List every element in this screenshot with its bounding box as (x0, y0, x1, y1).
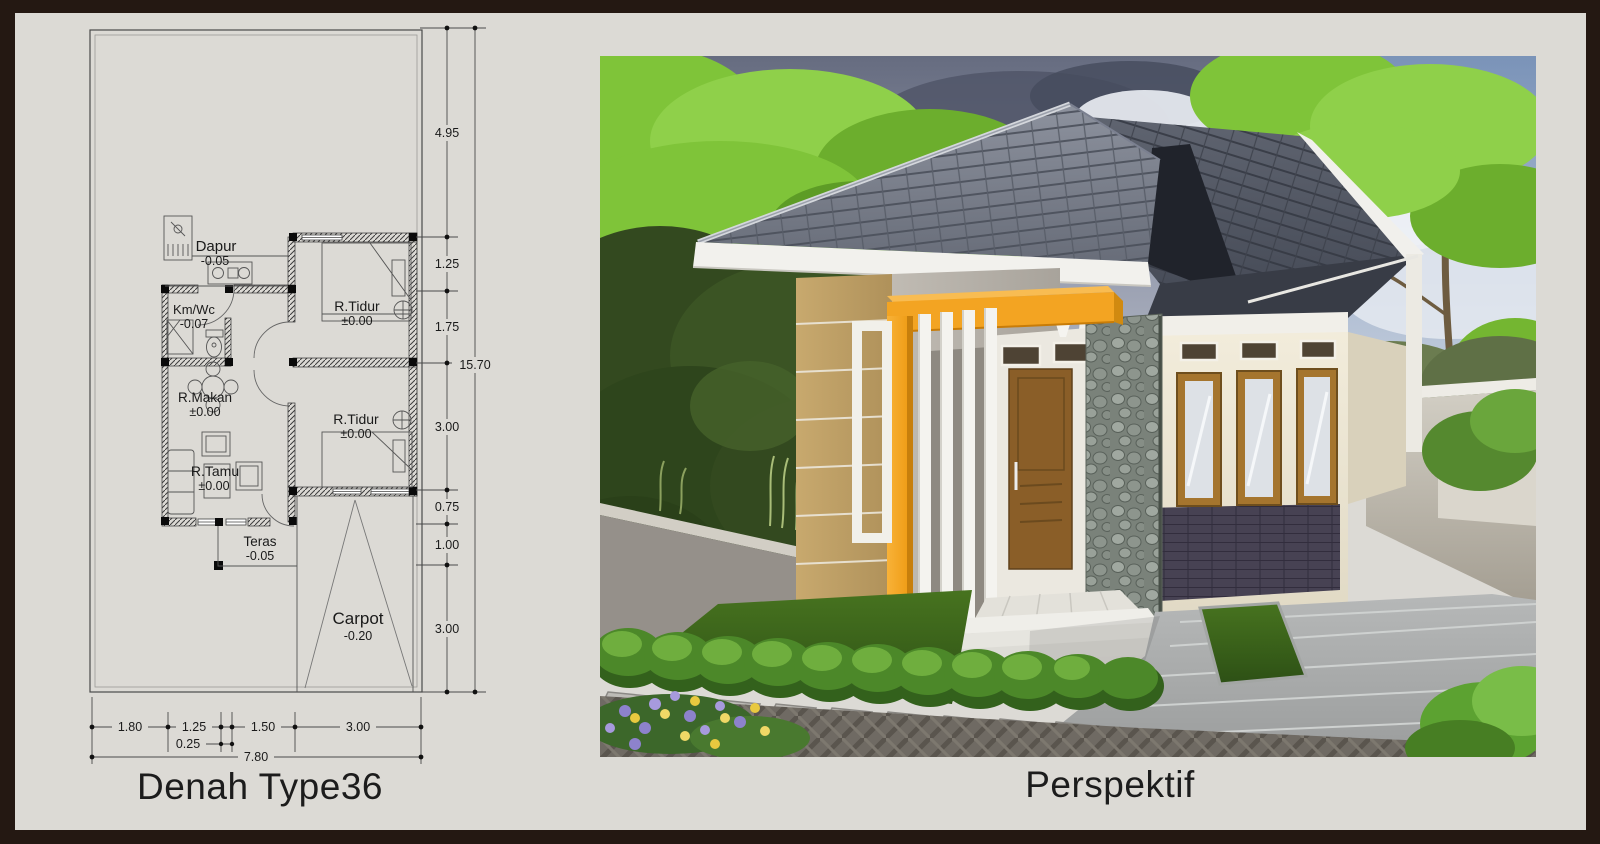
dim-v-6: 3.00 (435, 622, 459, 636)
teras-carport (218, 496, 413, 692)
room-level-tidur1: ±0.00 (341, 314, 372, 328)
door-transom (1002, 346, 1040, 365)
room-label-makan: R.Makan (178, 390, 232, 405)
room-label-tidur2: R.Tidur (333, 411, 379, 427)
entry (988, 314, 1162, 640)
plan-caption: Denah Type36 (90, 766, 430, 808)
transom-window (1301, 341, 1335, 358)
room-level-tidur2: ±0.00 (340, 427, 371, 441)
frame-edge-left (0, 0, 15, 844)
room-label-kmwc: Km/Wc (173, 302, 215, 317)
dim-h-0: 1.80 (118, 720, 142, 734)
room-label-carpot: Carpot (332, 609, 383, 628)
side-recess-wall (1348, 332, 1406, 504)
room-level-teras: -0.05 (246, 549, 275, 563)
room-level-dapur: -0.05 (201, 254, 230, 268)
room-level-carpot: -0.20 (344, 629, 373, 643)
room-level-kmwc: -0.07 (180, 317, 209, 331)
dim-h-2: 1.50 (251, 720, 275, 734)
brick-dado (1143, 504, 1340, 602)
dim-v-2: 1.75 (435, 320, 459, 334)
room-label-tamu: R.Tamu (191, 463, 239, 479)
floor-plan: Dapur -0.05 Km/Wc -0.07 R.Tidur ±0.00 R.… (0, 0, 560, 844)
dim-h-total: 7.80 (244, 750, 268, 764)
frame-edge-right (1586, 0, 1600, 844)
frame-edge-top (0, 0, 1600, 13)
dim-h-1: 1.25 (182, 720, 206, 734)
window-group (1177, 369, 1337, 506)
dim-h-3: 3.00 (346, 720, 370, 734)
dim-v-4: 0.75 (435, 500, 459, 514)
dim-h-sub: 0.25 (176, 737, 200, 751)
flower-bed (600, 691, 810, 757)
dim-v-total: 15.70 (459, 358, 490, 372)
dim-v-5: 1.00 (435, 538, 459, 552)
room-label-dapur: Dapur (196, 238, 237, 255)
dim-v-1: 1.25 (435, 257, 459, 271)
transom-window (1241, 342, 1277, 359)
transom-window (1181, 343, 1217, 360)
frame-edge-bottom (0, 830, 1600, 844)
room-level-tamu: ±0.00 (198, 479, 229, 493)
dim-v-0: 4.95 (435, 126, 459, 140)
room-label-tidur1: R.Tidur (334, 298, 380, 314)
perspective-rendering (600, 56, 1536, 757)
stone-pillar (1086, 314, 1162, 640)
perspective-caption: Perspektif (930, 764, 1290, 806)
room-label-teras: Teras (243, 534, 276, 549)
room-level-makan: ±0.00 (189, 405, 220, 419)
dim-v-3: 3.00 (435, 420, 459, 434)
